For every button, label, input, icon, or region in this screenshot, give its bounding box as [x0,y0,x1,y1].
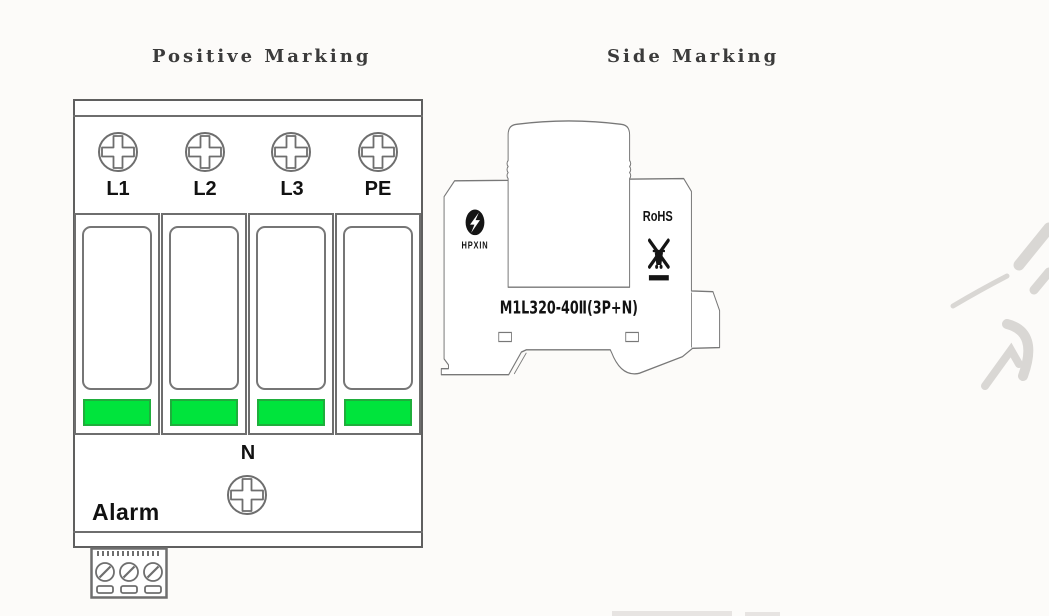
module-window [169,226,239,390]
status-indicator-green [170,399,238,426]
spd-side-view: HPXIN RoHS M1L320-40Ⅱ(3P+N) [438,116,978,472]
terminal-label-l3: L3 [262,178,322,201]
protection-module-1 [74,213,160,435]
front-top-strip [73,115,423,117]
front-bottom-strip [73,531,423,533]
marking-diagram: Positive Marking Side Marking L1 L2 L3 P… [0,0,1049,616]
hpxin-lightning-logo-icon [466,210,485,236]
screw-l1-icon [96,130,140,174]
front-view-title: Positive Marking [152,46,371,70]
wire-slots-icon [97,586,161,593]
terminal-label-n: N [213,442,283,465]
alarm-terminal-block [90,547,169,599]
screw-pe-icon [356,130,400,174]
rail-hole-left [499,332,512,341]
protection-module-2 [161,213,247,435]
side-view-title: Side Marking [607,46,779,70]
plug-module-outline [507,121,631,287]
module-window [82,226,152,390]
module-window [343,226,413,390]
screw-n-icon [225,473,269,517]
alarm-label: Alarm [92,499,160,526]
screw-l3-icon [269,130,313,174]
terminal-label-l1: L1 [88,178,148,201]
terminal-label-pe: PE [348,178,408,201]
rail-hole-right [626,332,639,341]
model-number-label: M1L320-40Ⅱ(3P+N) [500,298,638,319]
protection-module-4 [335,213,421,435]
scan-artifact [745,612,780,616]
module-window [256,226,326,390]
brand-label: HPXIN [462,240,489,251]
rohs-label: RoHS [643,207,673,224]
scan-artifact [612,611,732,616]
screw-l2-icon [183,130,227,174]
slotted-screws-icon [96,563,162,581]
status-indicator-green [83,399,151,426]
status-indicator-green [257,399,325,426]
status-indicator-green [344,399,412,426]
protection-module-3 [248,213,334,435]
terminal-label-l2: L2 [175,178,235,201]
